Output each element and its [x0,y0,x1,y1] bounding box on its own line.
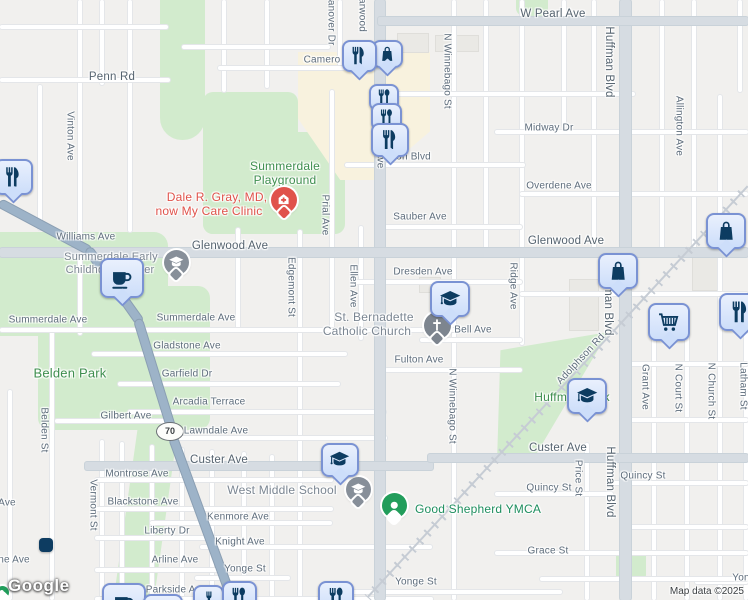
road [345,163,525,167]
street-label: Prial Ave [320,194,331,235]
street-label: Custer Ave [190,454,248,466]
road [330,90,334,330]
road [390,92,635,96]
poi-label[interactable]: Good Shepherd YMCA [415,502,541,516]
street-label: Dresden Ave [393,267,452,278]
road [265,0,269,88]
road [630,418,748,422]
street-label: Gladstone Ave [153,341,220,352]
road [182,45,330,49]
street-label: Sauber Ave [393,212,447,223]
street-label: ne Ave [0,555,30,566]
dot-icon [385,496,404,515]
street-label: Vermont St [88,479,99,530]
street-label: Edgemont St [286,257,297,317]
road [195,576,290,580]
road [8,390,12,600]
road [484,0,488,250]
street-label: Quincy St [620,471,665,482]
poi-pin[interactable] [598,253,638,295]
poi-pin[interactable] [143,594,183,600]
poi-label[interactable]: West Middle School [227,483,336,497]
poi-pin[interactable] [0,159,33,200]
google-logo[interactable]: Google [8,576,70,596]
street-label: Garfield Dr [162,369,213,380]
road [620,525,748,529]
poi-marker[interactable] [164,250,189,275]
street-label: Knight Ave [215,537,265,548]
road [685,328,689,600]
street-label: Yon [732,573,748,584]
restaurant-icon [726,298,748,326]
road [660,0,664,250]
road [380,225,522,229]
road [128,0,132,232]
road [38,85,42,230]
poi-pin-body [193,585,224,600]
street-label: Glenwood Ave [192,240,268,252]
road [92,352,347,356]
food-icon [324,585,348,600]
street-label: arwood [357,0,368,32]
street-label: N Church St [706,363,717,420]
fork-icon [198,589,218,600]
road [95,568,233,572]
street-label: Overdene Ave [526,181,592,192]
poi-label[interactable]: now My Care Clinic [156,204,263,218]
route-70-shield: 70 [156,422,184,441]
poi-pin[interactable] [342,40,377,78]
poi-pin[interactable] [321,443,359,483]
road [620,0,631,600]
poi-pin[interactable] [567,378,607,420]
road [540,577,748,581]
street-label: Quincy St [526,483,571,494]
poi-label[interactable]: Playground [254,173,317,187]
road [95,507,333,511]
poi-pin[interactable] [222,581,257,600]
poi-label[interactable]: Dale R. Gray, MD, [167,190,268,204]
road [592,0,596,250]
street-label: Fulton Ave [394,355,443,366]
poi-pin[interactable] [371,123,409,163]
street-label: Grant Ave [640,364,651,410]
poi-pin[interactable] [648,303,690,347]
poi-pin[interactable] [318,581,354,600]
street-label: Camero [304,55,341,66]
road [0,78,170,82]
street-label: Latham St [738,362,748,409]
street-label: Williams Ave [57,232,116,243]
poi-pin[interactable] [193,585,224,600]
poi-pin-body [102,583,146,600]
poi-label[interactable]: Belden Park [33,366,106,381]
street-label: Price St [573,460,584,497]
street-label: Grace St [527,546,568,557]
street-label: Arline Ave [152,555,199,566]
poi-marker[interactable] [271,187,297,213]
street-label: Yonge St [395,577,437,588]
street-label: N Winnebago St [447,368,458,444]
dot-icon [0,587,7,597]
street-label: Vinton Ave [65,111,76,160]
poi-label[interactable]: Summerdale [250,159,320,173]
street-label: Allington Ave [674,96,685,156]
street-label: N Court St [673,364,684,413]
street-label: Midway Dr [524,123,573,134]
street-label: Glenwood Ave [528,235,604,247]
road [218,66,345,70]
street-label: Hanover Dr [326,0,337,46]
street-label: Arcadia Terrace [173,397,246,408]
street-label: Blackstone Ave [108,497,179,508]
poi-pin[interactable] [100,258,144,304]
cafe-icon [109,588,138,600]
building-footprint [398,34,428,52]
poi-pin[interactable] [706,213,746,255]
school-badge-icon [167,253,186,272]
road [428,454,748,462]
map-canvas[interactable]: 70W Pearl AvePenn RdCameroMidway DrBarto… [0,0,748,600]
poi-marker-square[interactable] [39,538,53,552]
street-label: Ridge Ave [508,262,519,309]
poi-pin-body [143,594,183,600]
street-label: Penn Rd [89,71,135,83]
building-footprint [570,280,598,330]
street-label: Lawndale Ave [184,426,249,437]
poi-pin[interactable] [719,293,748,337]
street-label: Belden St [39,407,50,452]
road [0,25,168,29]
street-label: Summerdale Ave [9,315,88,326]
road [652,328,656,600]
street-label: Montrose Ave [105,469,168,480]
road [175,436,387,440]
food-icon [227,585,250,600]
street-label: Yonge St [224,564,266,575]
street-label: N Winnebago St [442,33,453,109]
street-label: Huffman Blvd [604,446,616,517]
street-label: Custer Ave [529,442,587,454]
poi-pin[interactable] [102,583,146,600]
poi-marker[interactable] [382,493,407,518]
road [78,0,82,335]
street-label: Ave [0,498,16,509]
poi-label[interactable]: St. Bernadette [334,310,414,324]
street-label: Bell Ave [454,325,492,336]
poi-label[interactable]: Catholic Church [323,324,411,338]
medical-icon [274,190,293,209]
road [692,0,696,250]
poi-pin-body [318,581,354,600]
street-label: Kenmore Ave [207,512,269,523]
road [738,0,742,92]
poi-pin[interactable] [430,281,470,323]
street-label: W Pearl Ave [520,8,585,20]
map-attribution: Map data ©2025 [670,586,744,597]
road [118,382,340,386]
map-layers: 70W Pearl AvePenn RdCameroMidway DrBarto… [0,0,748,600]
street-label: Ellen Ave [348,264,359,307]
poi-pin-body [222,581,257,600]
street-label: Huffman Blvd [603,26,615,97]
street-label: Liberty Dr [144,526,189,537]
road [520,192,748,196]
street-label: Summerdale Ave [157,313,236,324]
street-label: Gilbert Ave [101,411,152,422]
park-area [160,0,205,140]
